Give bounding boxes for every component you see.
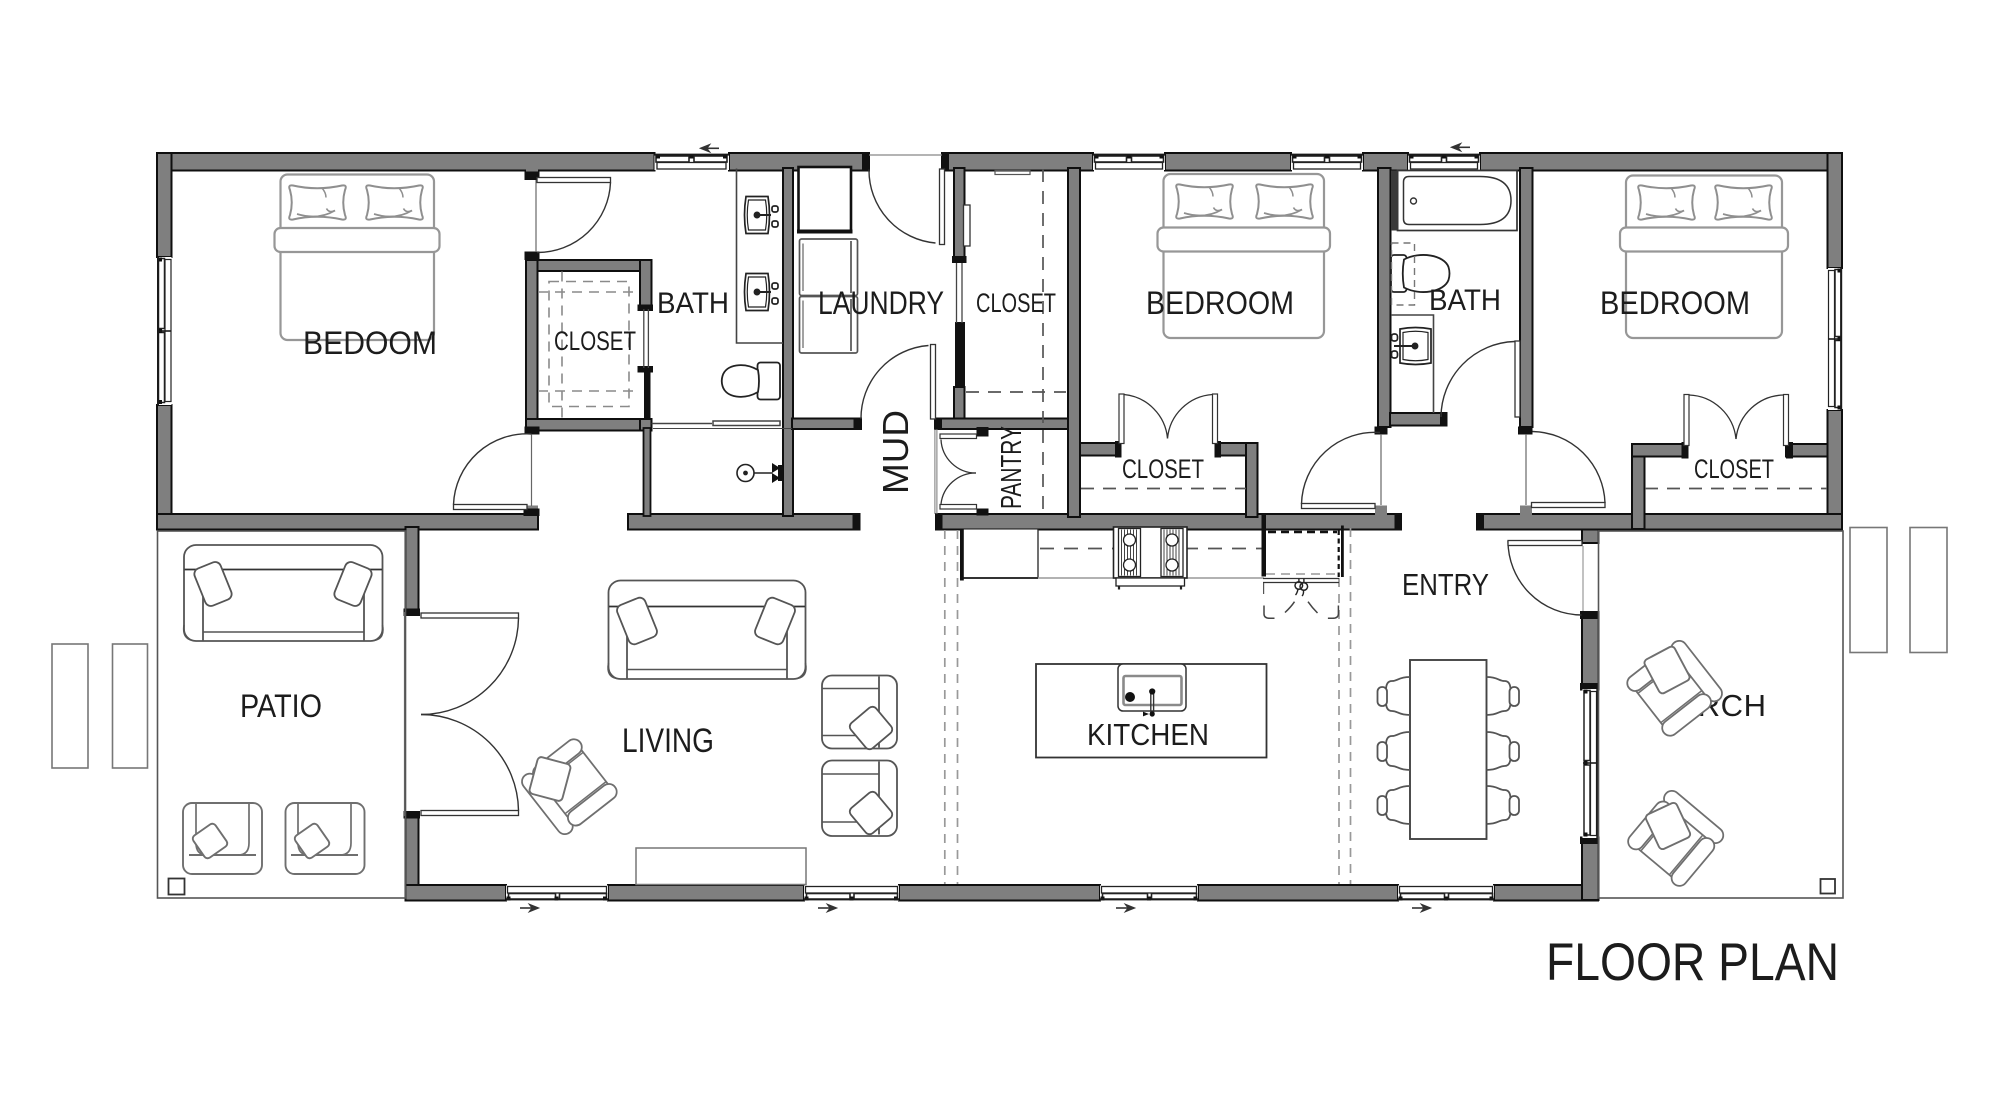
svg-text:PATIO: PATIO [240, 688, 322, 724]
svg-text:BATH: BATH [657, 287, 729, 320]
svg-text:BEDOOM: BEDOOM [303, 325, 437, 361]
svg-text:MUD: MUD [875, 410, 916, 494]
svg-text:KITCHEN: KITCHEN [1087, 717, 1209, 752]
svg-text:CLOSET: CLOSET [554, 326, 636, 356]
svg-text:BATH: BATH [1429, 284, 1501, 317]
svg-text:ENTRY: ENTRY [1402, 567, 1489, 602]
svg-text:LIVING: LIVING [622, 722, 714, 760]
svg-text:LAUNDRY: LAUNDRY [818, 285, 944, 321]
svg-text:CLOSET: CLOSET [976, 288, 1056, 318]
svg-text:PANTRY: PANTRY [996, 426, 1028, 509]
svg-text:CLOSET: CLOSET [1122, 454, 1204, 484]
svg-text:BEDROOM: BEDROOM [1600, 285, 1750, 321]
svg-text:FLOOR PLAN: FLOOR PLAN [1546, 933, 1839, 992]
svg-text:BEDROOM: BEDROOM [1146, 285, 1294, 321]
svg-text:CLOSET: CLOSET [1694, 454, 1774, 484]
